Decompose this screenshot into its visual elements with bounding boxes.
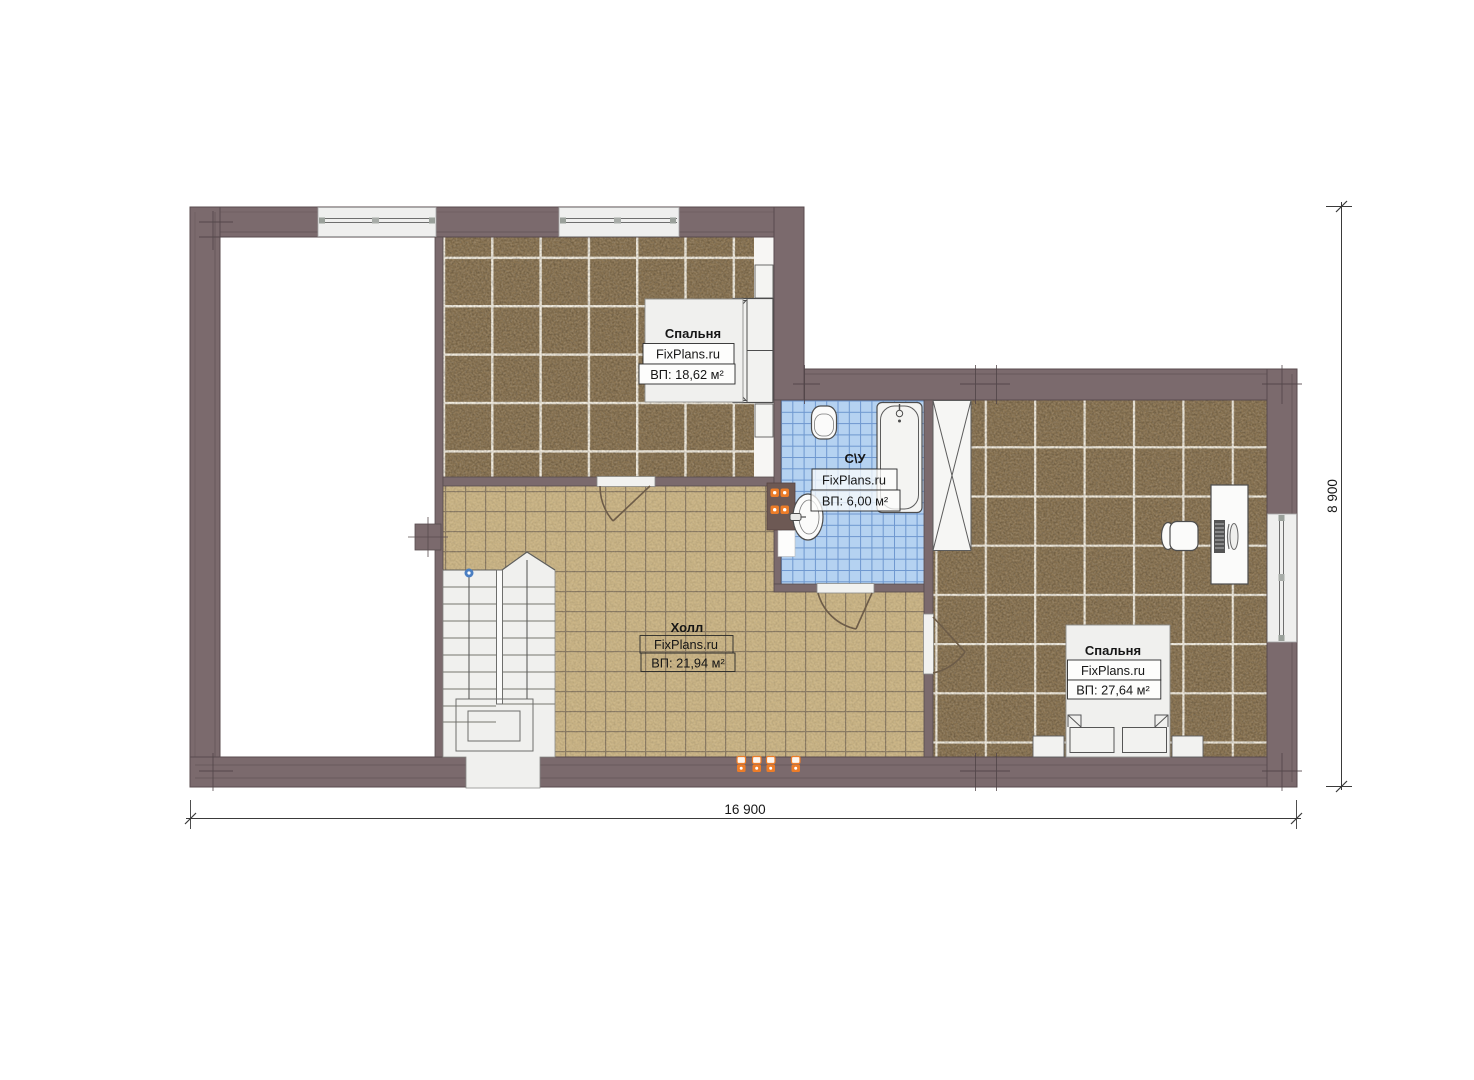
svg-text:ВП: 21,94 м²: ВП: 21,94 м² — [651, 656, 725, 671]
svg-text:16 900: 16 900 — [724, 802, 765, 817]
svg-text:ВП: 6,00 м²: ВП: 6,00 м² — [822, 494, 889, 509]
svg-text:FixPlans.ru: FixPlans.ru — [656, 347, 720, 362]
svg-text:ВП: 27,64 м²: ВП: 27,64 м² — [1076, 683, 1150, 698]
svg-text:FixPlans.ru: FixPlans.ru — [822, 473, 886, 488]
svg-text:FixPlans.ru: FixPlans.ru — [654, 637, 718, 652]
svg-text:8 900: 8 900 — [1325, 479, 1340, 513]
svg-text:С\У: С\У — [844, 451, 866, 466]
svg-text:ВП: 18,62 м²: ВП: 18,62 м² — [650, 367, 724, 382]
svg-text:Спальня: Спальня — [1085, 643, 1141, 658]
svg-text:Спальня: Спальня — [665, 326, 721, 341]
svg-text:Холл: Холл — [671, 620, 704, 635]
svg-text:FixPlans.ru: FixPlans.ru — [1081, 663, 1145, 678]
